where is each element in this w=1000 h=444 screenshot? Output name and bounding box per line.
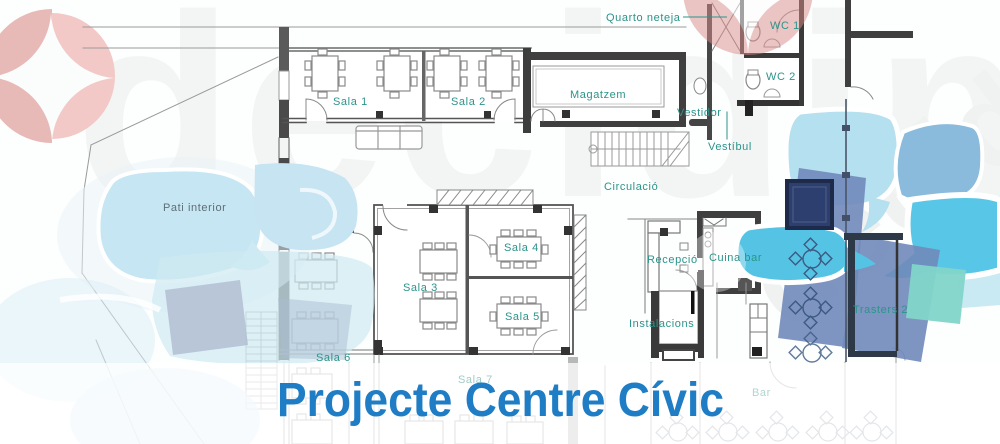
svg-text:Sala 5: Sala 5 [505,311,540,323]
svg-text:Sala 6: Sala 6 [316,352,351,364]
svg-text:Sala 3: Sala 3 [403,282,438,294]
svg-text:Sala 4: Sala 4 [504,242,539,254]
svg-text:Sala 1: Sala 1 [333,96,368,108]
svg-text:Instalacions: Instalacions [629,318,694,330]
svg-text:Quarto neteja: Quarto neteja [606,12,681,24]
svg-text:Projecte Centre Cívic: Projecte Centre Cívic [277,374,724,427]
svg-text:WC 1: WC 1 [770,20,800,32]
svg-text:WC 2: WC 2 [766,71,796,83]
svg-text:Bar: Bar [752,387,771,399]
svg-text:Pati interior: Pati interior [163,202,226,214]
svg-text:Magatzem: Magatzem [570,89,626,101]
svg-text:Vestidor: Vestidor [677,107,722,119]
svg-text:Cuina bar: Cuina bar [709,252,762,264]
svg-text:Trasters 2: Trasters 2 [853,304,908,316]
svg-text:Recepció: Recepció [647,254,698,266]
svg-text:Circulació: Circulació [604,181,658,193]
svg-text:Sala 2: Sala 2 [451,96,486,108]
svg-text:Vestíbul: Vestíbul [708,141,752,153]
